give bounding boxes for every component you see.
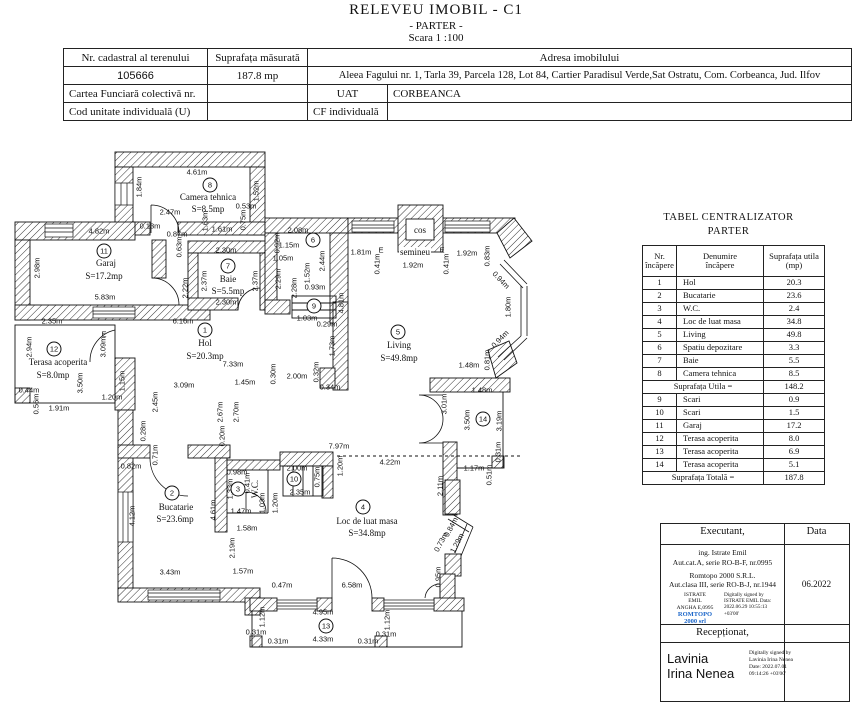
centralizator-cell: 11 bbox=[643, 420, 677, 433]
dimension-label: 0.41m bbox=[442, 254, 451, 275]
dimension-label: 0.56m bbox=[32, 394, 41, 415]
centralizator-cell: 10 bbox=[643, 407, 677, 420]
centralizator-cell: 7 bbox=[643, 355, 677, 368]
room-label: Camera tehnica bbox=[180, 192, 236, 202]
dimension-label: 2.67m bbox=[216, 402, 225, 423]
room-number: 9 bbox=[307, 299, 322, 314]
room-label: Garaj bbox=[96, 258, 116, 268]
dimension-label: 1.12m bbox=[258, 607, 267, 628]
dimension-label: 0.75m bbox=[239, 210, 248, 231]
centralizator-cell: 5.5 bbox=[764, 355, 825, 368]
dimension-label: 1.17m bbox=[464, 464, 485, 473]
centralizator-subtitle: PARTER bbox=[637, 225, 820, 239]
dimension-label: 1.57m bbox=[233, 567, 254, 576]
centralizator-cell: Camera tehnica bbox=[677, 368, 764, 381]
receptionat-header: Recepționat, bbox=[661, 627, 784, 638]
dimension-label: 3.43m bbox=[160, 568, 181, 577]
room-label: Living bbox=[387, 340, 411, 350]
room-number: 13 bbox=[319, 619, 334, 634]
centralizator-cell: Suprafața Totală = bbox=[643, 472, 764, 485]
dimension-label: 2.37m bbox=[251, 271, 260, 292]
dimension-label: 3.01m bbox=[440, 394, 449, 415]
centralizator-cell: Loc de luat masa bbox=[677, 316, 764, 329]
dimension-label: 1.73m bbox=[328, 336, 337, 357]
dimension-label: 2.47m bbox=[160, 208, 181, 217]
col-header-nr: Nr.încăpere bbox=[643, 246, 677, 277]
dimension-label: 2.28m bbox=[290, 278, 299, 299]
dimension-label: 0.28m bbox=[139, 421, 148, 442]
centralizator-cell: 5 bbox=[643, 329, 677, 342]
dimension-label: 0.32m bbox=[312, 362, 321, 383]
executant-line: ing. Istrate Emil bbox=[662, 548, 783, 558]
dimension-label: 0.82m bbox=[121, 462, 142, 471]
centralizator-cell: Terasa acoperita bbox=[677, 446, 764, 459]
dimension-label: 3.09m bbox=[99, 337, 108, 358]
digital-stamp-executant: ISTRATE EMIL ANGHA E,0995 ROMTOPO 2000 s… bbox=[662, 592, 783, 626]
room-label: Loc de luat masa bbox=[336, 516, 397, 526]
dimension-label: 2.94m bbox=[25, 337, 34, 358]
dimension-label: 1.20m bbox=[271, 493, 280, 514]
dimension-label: 2.35m bbox=[42, 317, 63, 326]
room-number: 4 bbox=[356, 500, 371, 515]
dimension-label: 0.20m bbox=[218, 426, 227, 447]
dimension-label: 1.47m bbox=[231, 507, 252, 516]
dimension-label: 3.09m bbox=[174, 381, 195, 390]
dimension-label: 0.83m bbox=[483, 246, 492, 267]
dimension-label: 0.31m bbox=[246, 628, 267, 637]
signature-block: Executant, Data ing. Istrate Emil Aut.ca… bbox=[660, 523, 850, 702]
dimension-label: 2.08m bbox=[288, 226, 309, 235]
centralizator-cell: 1 bbox=[643, 277, 677, 290]
dimension-label: 2.45m bbox=[151, 392, 160, 413]
dimension-label: 1.84m bbox=[135, 177, 144, 198]
dimension-label: 0.31m bbox=[494, 442, 503, 463]
room-number: 2 bbox=[165, 486, 180, 501]
centralizator-cell: Living bbox=[677, 329, 764, 342]
room-number: 11 bbox=[97, 244, 112, 259]
centralizator-cell: 2.4 bbox=[764, 303, 825, 316]
dimension-label: 2.30m bbox=[216, 298, 237, 307]
dimension-label: 4.33m bbox=[313, 635, 334, 644]
dimension-label: 0.31m bbox=[376, 630, 397, 639]
centralizator-cell: Suprafața Utila = bbox=[643, 381, 764, 394]
room-number: 6 bbox=[306, 233, 321, 248]
dimension-label: 1.15m bbox=[279, 241, 300, 250]
executant-line: Romtopo 2000 S.R.L. bbox=[662, 571, 783, 581]
dimension-label: 1.48m bbox=[459, 361, 480, 370]
centralizator-cell: 1.5 bbox=[764, 407, 825, 420]
data-header: Data bbox=[784, 526, 849, 537]
room-label: S=23.6mp bbox=[156, 514, 193, 524]
executant-header: Executant, bbox=[661, 526, 784, 537]
stamp-left: ISTRATE EMIL ANGHA E,0995 ROMTOPO 2000 s… bbox=[669, 592, 721, 626]
dimension-label: 0.63m bbox=[175, 237, 184, 258]
dimension-label: 2.44m bbox=[318, 251, 327, 272]
dimension-label: 3.50m bbox=[463, 410, 472, 431]
dimension-label: 1.52m bbox=[252, 181, 261, 202]
dimension-label: 5.83m bbox=[95, 293, 116, 302]
centralizator-cell: Bucatarie bbox=[677, 290, 764, 303]
dimension-label: 1.80m bbox=[504, 297, 513, 318]
room-number: 12 bbox=[47, 342, 62, 357]
centralizator-cell: 187.8 bbox=[764, 472, 825, 485]
room-label: S=49.8mp bbox=[380, 353, 417, 363]
dimension-label: 4.61m bbox=[209, 500, 218, 521]
room-label: cos bbox=[414, 225, 426, 235]
col-header-denumire: Denumireîncăpere bbox=[677, 246, 764, 277]
dimension-label: 1.92m bbox=[403, 261, 424, 270]
centralizator-cell: 0.9 bbox=[764, 394, 825, 407]
centralizator-cell: 14 bbox=[643, 459, 677, 472]
dimension-label: 1.03m bbox=[258, 493, 267, 514]
dimension-label: 2.37m bbox=[200, 271, 209, 292]
dimension-label: 1.92m bbox=[457, 249, 478, 258]
centralizator-cell: 12 bbox=[643, 433, 677, 446]
centralizator-cell: 4 bbox=[643, 316, 677, 329]
room-label: S=8.5mp bbox=[192, 204, 225, 214]
centralizator-cell: Terasa acoperita bbox=[677, 459, 764, 472]
centralizator-cell: W.C. bbox=[677, 303, 764, 316]
dimension-label: 0.81m bbox=[483, 350, 492, 371]
data-value: 06.2022 bbox=[784, 579, 849, 589]
centralizator-cell: Scari bbox=[677, 407, 764, 420]
dimension-label: 0.31m bbox=[268, 637, 289, 646]
centralizator-cell: Baie bbox=[677, 355, 764, 368]
room-number: 5 bbox=[391, 325, 406, 340]
dimension-label: 4.95m bbox=[313, 608, 334, 617]
dimension-label: 1.48m bbox=[472, 386, 493, 395]
centralizator-table: Nr.încăpere Denumireîncăpere Suprafața u… bbox=[642, 245, 825, 485]
centralizator-cell: 8 bbox=[643, 368, 677, 381]
executant-details: ing. Istrate Emil Aut.cat.A, serie RO-B-… bbox=[662, 548, 783, 626]
dimension-label: 1.03m bbox=[297, 314, 318, 323]
room-label: S=34.8mp bbox=[348, 528, 385, 538]
divider bbox=[661, 642, 849, 643]
dimension-label: 0.95m bbox=[434, 567, 443, 588]
dimension-label: 0.51m bbox=[485, 465, 494, 486]
centralizator-cell: 148.2 bbox=[764, 381, 825, 394]
dimension-label: 4.61m bbox=[187, 168, 208, 177]
centralizator-cell: 6.9 bbox=[764, 446, 825, 459]
dimension-label: 4.81m bbox=[337, 293, 346, 314]
dimension-label: 2.19m bbox=[228, 538, 237, 559]
dimension-label: 1.52m bbox=[303, 263, 312, 284]
cadastral-survey-page: RELEVEU IMOBIL - C1 - PARTER - Scara 1 :… bbox=[0, 0, 860, 720]
centralizator-cell: Spatiu depozitare bbox=[677, 342, 764, 355]
dimension-label: 0.13m bbox=[140, 222, 161, 231]
dimension-label: 4.12m bbox=[128, 506, 137, 527]
dimension-label: 2.30m bbox=[216, 246, 237, 255]
room-label: Baie bbox=[220, 274, 237, 284]
centralizator-cell: 23.6 bbox=[764, 290, 825, 303]
room-label: S=8.0mp bbox=[37, 370, 70, 380]
centralizator-cell: Hol bbox=[677, 277, 764, 290]
room-number: 3 bbox=[231, 482, 246, 497]
centralizator-title-block: TABEL CENTRALIZATOR PARTER bbox=[637, 211, 820, 239]
dimension-label: E bbox=[439, 246, 444, 255]
digital-stamp-receptionat: Digitally signed by Lavinia Irina Nenea … bbox=[749, 650, 805, 678]
executant-line: Aut.clasa III, serie RO-B-J, nr.1944 bbox=[662, 580, 783, 590]
dimension-label: 1.58m bbox=[237, 524, 258, 533]
dimension-label: 7.97m bbox=[329, 442, 350, 451]
dimension-label: 1.91m bbox=[49, 404, 70, 413]
centralizator-cell: 17.2 bbox=[764, 420, 825, 433]
dimension-label: 1.61m bbox=[212, 225, 233, 234]
stamp-brand: ROMTOPO bbox=[669, 611, 721, 618]
centralizator-cell: 20.3 bbox=[764, 277, 825, 290]
dimension-label: 0.93m bbox=[305, 283, 326, 292]
dimension-label: 1.20m bbox=[336, 456, 345, 477]
dimension-label: 0.30m bbox=[269, 364, 278, 385]
dimension-label: 0.47m bbox=[272, 581, 293, 590]
centralizator-cell: 8.0 bbox=[764, 433, 825, 446]
dimension-label: 1.05m bbox=[273, 254, 294, 263]
room-number: 14 bbox=[476, 412, 491, 427]
stamp-brand: 2000 srl bbox=[669, 618, 721, 625]
centralizator-cell: 49.8 bbox=[764, 329, 825, 342]
centralizator-cell: 3.3 bbox=[764, 342, 825, 355]
room-label: S=20.3mp bbox=[186, 351, 223, 361]
centralizator-cell: Scari bbox=[677, 394, 764, 407]
dimension-label: 2.70m bbox=[232, 402, 241, 423]
room-number: 1 bbox=[198, 323, 213, 338]
centralizator-cell: 5.1 bbox=[764, 459, 825, 472]
dimension-label: 0.71m bbox=[151, 445, 160, 466]
centralizator-cell: 9 bbox=[643, 394, 677, 407]
stamp-right: Digitally signed by ISTRATE EMIL Data: 2… bbox=[724, 592, 776, 626]
dimension-label: 2.22m bbox=[181, 278, 190, 299]
room-label: Terasa acoperita bbox=[29, 357, 88, 367]
dimension-label: 1.12m bbox=[383, 610, 392, 631]
room-label: semineu bbox=[399, 247, 431, 257]
centralizator-cell: Garaj bbox=[677, 420, 764, 433]
room-label: Bucatarie bbox=[159, 502, 193, 512]
divider bbox=[661, 544, 849, 545]
dimension-label: 1.20m bbox=[102, 393, 123, 402]
executant-line: Aut.cat.A, serie RO-B-F, nr.0995 bbox=[662, 558, 783, 568]
centralizator-cell: 2 bbox=[643, 290, 677, 303]
dimension-label: 2.98m bbox=[33, 258, 42, 279]
room-number: 10 bbox=[287, 472, 302, 487]
dimension-label: E bbox=[101, 330, 106, 339]
dimension-label: 0.29m bbox=[317, 320, 338, 329]
dimension-label: 2.35m bbox=[290, 488, 311, 497]
dimension-label: 2.11m bbox=[436, 476, 445, 496]
room-number: 7 bbox=[221, 259, 236, 274]
dimension-label: 0.41m bbox=[373, 254, 382, 275]
dimension-label: 4.22m bbox=[380, 458, 401, 467]
room-label: S=5.5mp bbox=[212, 286, 245, 296]
room-label: Hol bbox=[198, 338, 212, 348]
centralizator-cell: Terasa acoperita bbox=[677, 433, 764, 446]
dimension-label: 1.15m bbox=[118, 371, 127, 392]
centralizator-cell: 34.8 bbox=[764, 316, 825, 329]
dimension-label: 6.58m bbox=[342, 581, 363, 590]
room-number: 8 bbox=[203, 178, 218, 193]
dimension-label: 6.16m bbox=[173, 317, 194, 326]
dimension-label: 1.45m bbox=[235, 378, 256, 387]
dimension-label: 2.29m bbox=[274, 269, 283, 290]
centralizator-cell: 6 bbox=[643, 342, 677, 355]
dimension-label: 0.75m bbox=[313, 467, 322, 488]
col-header-suprafata: Suprafața utila(mp) bbox=[764, 246, 825, 277]
dimension-label: 3.19m bbox=[495, 411, 504, 432]
dimension-label: 4.82m bbox=[89, 227, 110, 236]
centralizator-cell: 3 bbox=[643, 303, 677, 316]
centralizator-cell: 8.5 bbox=[764, 368, 825, 381]
dimension-label: 3.50m bbox=[76, 373, 85, 394]
centralizator-cell: 13 bbox=[643, 446, 677, 459]
dimension-label: 1.81m bbox=[351, 248, 372, 257]
dimension-label: 2.00m bbox=[287, 372, 308, 381]
room-label: S=17.2mp bbox=[85, 271, 122, 281]
dimension-label: 0.34m bbox=[320, 383, 341, 392]
dimension-label: 7.33m bbox=[223, 360, 244, 369]
centralizator-title: TABEL CENTRALIZATOR bbox=[637, 211, 820, 225]
